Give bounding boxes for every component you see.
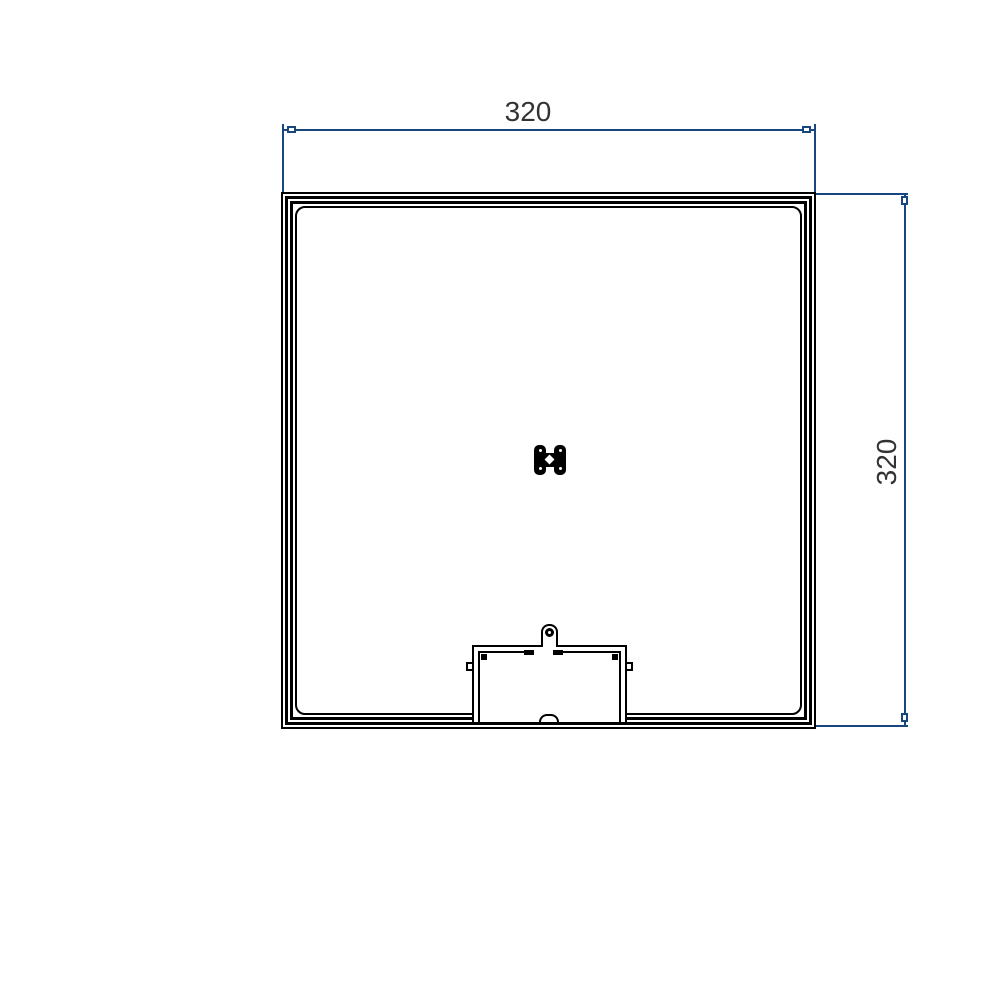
- handle-screw-hole: [539, 449, 542, 452]
- handle-screw-hole: [559, 467, 562, 470]
- hatch-latch-right: [553, 650, 563, 655]
- handle-screw-hole: [539, 467, 542, 470]
- dimension-terminator: [901, 196, 908, 205]
- hatch-bottom-notch: [539, 714, 559, 722]
- extension-line-right-top: [816, 193, 908, 195]
- handle-screw-hole: [559, 449, 562, 452]
- hinge-hole-icon: [545, 628, 554, 637]
- hatch-corner-mark-right: [612, 654, 618, 660]
- extension-line-top-left: [282, 124, 284, 192]
- dimension-terminator: [287, 126, 296, 133]
- dimension-line-vertical: [904, 193, 906, 727]
- hatch-side-lug-right: [625, 662, 633, 671]
- extension-line-top-right: [814, 124, 816, 192]
- dimension-line-horizontal: [282, 129, 816, 131]
- hatch-corner-mark-left: [481, 654, 487, 660]
- hatch-latch-left: [524, 650, 534, 655]
- hatch-inner-outline: [478, 651, 621, 722]
- dimension-terminator: [901, 713, 908, 722]
- hatch-side-lug-left: [466, 662, 474, 671]
- dimension-label-horizontal: 320: [488, 98, 568, 126]
- dimension-label-vertical: 320: [873, 422, 901, 502]
- technical-drawing-canvas: 320 320: [0, 0, 1000, 1000]
- dimension-terminator: [802, 126, 811, 133]
- extension-line-right-bottom: [816, 725, 908, 727]
- hatch-latch-gap: [533, 651, 553, 655]
